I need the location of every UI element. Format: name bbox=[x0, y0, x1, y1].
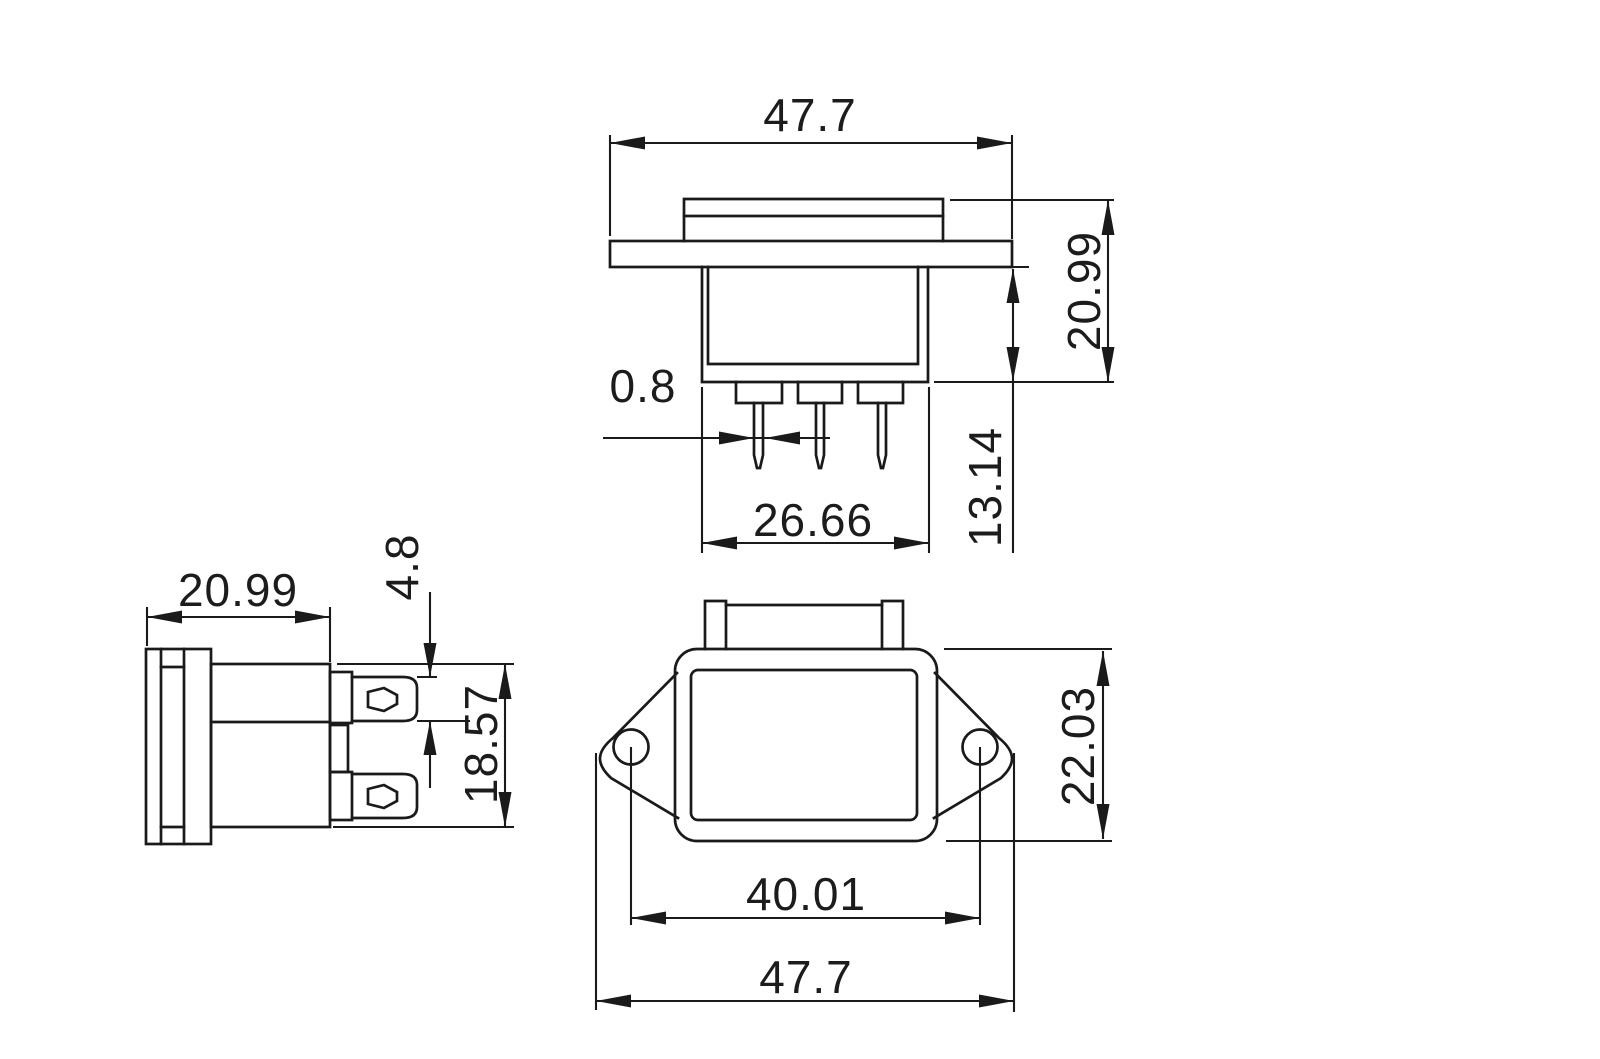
dim-label-front-overall-width: 47.7 bbox=[759, 951, 853, 1003]
top-view-body-inner bbox=[708, 267, 918, 364]
arrowhead-down bbox=[1102, 347, 1115, 382]
arrowhead-right bbox=[894, 537, 929, 550]
arrowhead-down bbox=[424, 643, 437, 677]
arrowhead-up bbox=[1097, 651, 1110, 686]
dim-front-height: 22.03 bbox=[944, 649, 1112, 841]
side-view-faston-tab-bottom bbox=[352, 774, 417, 818]
dim-label-pin-row-width: 26.66 bbox=[753, 494, 873, 546]
dim-side-depth: 20.99 bbox=[147, 564, 330, 662]
top-view-pin-2 bbox=[816, 403, 824, 468]
dim-label-top-height: 20.99 bbox=[1058, 231, 1110, 351]
dim-top-height: 20.99 bbox=[934, 200, 1115, 382]
front-view-post-left bbox=[705, 601, 726, 649]
side-view bbox=[146, 649, 417, 844]
side-view-faston-tab-top bbox=[352, 677, 417, 721]
top-view-terminal-base-3 bbox=[858, 382, 903, 403]
front-view-wing-left bbox=[600, 673, 678, 818]
arrowhead-up bbox=[1007, 269, 1020, 303]
dim-label-top-overall-width: 47.7 bbox=[763, 89, 857, 141]
side-view-tab-hole-top bbox=[368, 688, 397, 711]
arrowhead-right bbox=[977, 137, 1012, 150]
top-view-cap-outline bbox=[684, 199, 943, 241]
top-view-pin-3 bbox=[878, 403, 886, 468]
side-view-terminal-neck-bottom bbox=[330, 772, 352, 820]
top-view-pin-1 bbox=[754, 403, 763, 468]
front-view-post-right bbox=[882, 601, 903, 649]
arrowhead-up bbox=[424, 721, 437, 755]
side-view-middle-terminal bbox=[330, 725, 348, 772]
arrowhead-right bbox=[945, 912, 980, 925]
arrowhead-left bbox=[147, 611, 182, 624]
arrowhead-left bbox=[631, 912, 666, 925]
dim-side-body-height: 18.57 bbox=[333, 664, 514, 827]
arrowhead-left bbox=[610, 137, 645, 150]
side-view-flange-plate bbox=[146, 649, 211, 844]
front-view-socket-opening bbox=[691, 670, 917, 820]
arrowhead-up bbox=[1102, 200, 1115, 235]
arrowhead-right bbox=[979, 995, 1014, 1008]
drawing-page: 47.7 20.99 13.14 0.8 26.66 20.99 bbox=[0, 0, 1600, 1059]
technical-drawing: 47.7 20.99 13.14 0.8 26.66 20.99 bbox=[0, 0, 1600, 1059]
dim-label-side-depth: 20.99 bbox=[178, 564, 298, 616]
dim-label-terminal-width: 4.8 bbox=[376, 534, 428, 601]
top-view bbox=[610, 199, 1012, 468]
dim-pin-thickness: 0.8 bbox=[603, 360, 830, 445]
side-view-body bbox=[211, 664, 330, 827]
arrowhead-left bbox=[596, 995, 631, 1008]
front-view bbox=[600, 601, 1012, 841]
top-view-terminal-base-2 bbox=[798, 382, 842, 403]
dim-label-body-depth: 13.14 bbox=[959, 427, 1011, 547]
top-view-flange bbox=[610, 241, 1012, 267]
arrowhead-down bbox=[1007, 347, 1020, 381]
front-view-wing-right bbox=[934, 673, 1012, 818]
dim-label-hole-spacing: 40.01 bbox=[746, 868, 866, 920]
side-view-terminal-neck-top bbox=[330, 672, 352, 723]
arrowhead-left bbox=[765, 432, 800, 445]
front-view-flange-face bbox=[675, 649, 937, 841]
arrowhead-down bbox=[1097, 804, 1110, 839]
dim-body-depth: 13.14 bbox=[959, 267, 1029, 553]
dim-label-front-height: 22.03 bbox=[1052, 686, 1104, 806]
side-view-tab-hole-bottom bbox=[368, 785, 397, 808]
dim-label-pin-thickness: 0.8 bbox=[610, 360, 677, 412]
arrowhead-right bbox=[719, 432, 754, 445]
top-view-terminal-base-1 bbox=[736, 382, 782, 403]
arrowhead-right bbox=[295, 611, 330, 624]
dim-label-side-body-height: 18.57 bbox=[455, 684, 507, 804]
arrowhead-left bbox=[702, 537, 737, 550]
